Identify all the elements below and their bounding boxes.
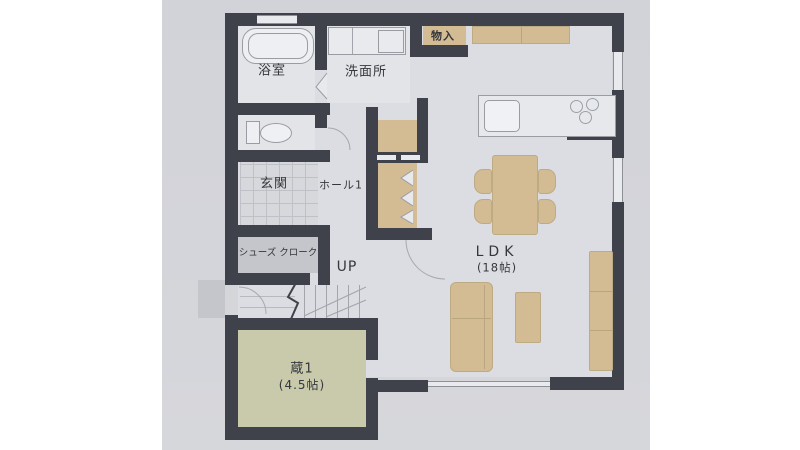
room-label-hall: ホール1 <box>319 180 363 191</box>
door-symbols-overlay <box>0 0 800 450</box>
stair-break-line <box>288 281 298 319</box>
room-size-kura: (4.5帖) <box>279 379 325 391</box>
bifold-door-icon <box>401 190 413 206</box>
room-size-ldk: (18帖) <box>477 262 517 274</box>
room-label-kura: 蔵1 <box>290 363 313 376</box>
toilet-door-arc <box>328 128 350 150</box>
floor-plan-screenshot: 浴室 洗面所 物入 玄関 ホール1 シューズ クローク UP 蔵1 (4.5帖)… <box>0 0 800 450</box>
room-label-bathroom: 浴室 <box>258 65 286 78</box>
stairs-up-label: UP <box>337 260 358 274</box>
room-label-entrance: 玄関 <box>260 178 288 191</box>
hall-ldk-door-arc <box>406 240 445 279</box>
bifold-door-icon <box>401 170 413 186</box>
room-label-ldk: LDK <box>476 245 519 259</box>
room-label-closet: 物入 <box>431 31 455 42</box>
bifold-door-icon <box>401 210 413 224</box>
room-label-shoe-closet: シューズ クローク <box>239 248 318 258</box>
room-label-washroom: 洗面所 <box>345 66 387 79</box>
bathroom-folding-door-icon <box>316 73 327 99</box>
front-door-arc <box>239 287 266 314</box>
stair-diagonal <box>304 287 366 316</box>
